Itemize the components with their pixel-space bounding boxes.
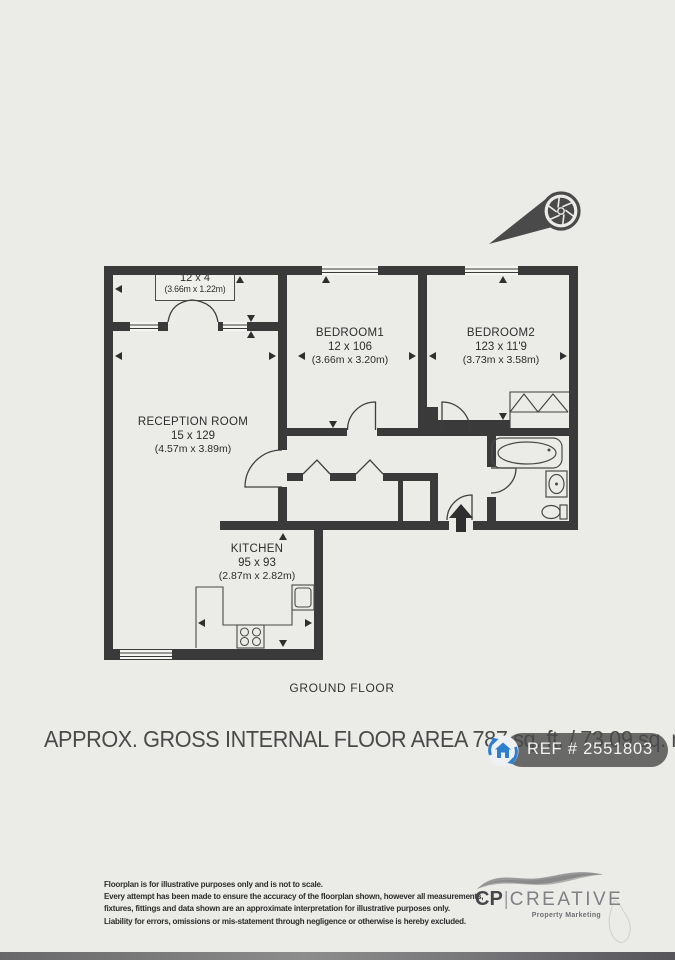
ref-badge-label: REF # 2551803 xyxy=(527,740,653,759)
window-bedroom2 xyxy=(465,266,518,275)
logo-creative: CREATIVE xyxy=(510,889,624,910)
kitchen-sink xyxy=(292,585,314,610)
closet-doors-hall xyxy=(303,460,383,474)
door-bathroom xyxy=(491,468,516,493)
wardrobe-bedroom2 xyxy=(510,392,569,428)
window-balcony-right xyxy=(223,322,247,331)
walls xyxy=(104,266,578,660)
doors xyxy=(168,300,569,520)
house-sync-icon xyxy=(486,734,520,768)
logo-cp: CP xyxy=(475,888,503,910)
kitchen-counter xyxy=(196,587,292,648)
window-reception-bottom xyxy=(120,650,172,659)
scan-edge-bar xyxy=(0,952,675,960)
camera-direction-icon xyxy=(489,193,579,244)
window-bedroom1 xyxy=(322,266,378,275)
door-bedroom1 xyxy=(348,402,376,430)
french-doors-balcony xyxy=(168,300,218,322)
logo-tagline: Property Marketing xyxy=(475,912,615,919)
door-reception xyxy=(245,450,282,487)
cp-creative-logo: CP|CREATIVE Property Marketing xyxy=(475,867,615,919)
entrance-arrow xyxy=(449,504,473,532)
toilet xyxy=(542,505,567,519)
washbasin xyxy=(546,471,567,497)
bathtub xyxy=(492,438,562,468)
stove xyxy=(237,625,264,648)
bathroom-fixtures xyxy=(492,438,567,519)
kitchen-fixtures xyxy=(196,585,314,648)
window-balcony-left xyxy=(130,322,158,331)
logo-divider: | xyxy=(503,889,510,910)
dimension-arrows xyxy=(115,276,567,647)
floorplan-drawing xyxy=(0,0,675,960)
